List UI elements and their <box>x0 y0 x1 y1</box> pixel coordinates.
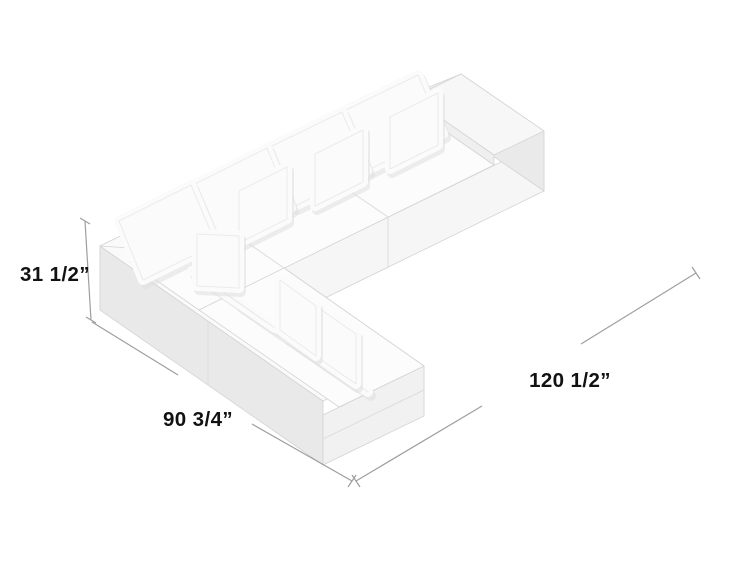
throw-pillow <box>197 234 241 292</box>
dimension-tick <box>692 267 700 279</box>
sofa-illustration <box>100 74 544 465</box>
dimension-diagram: 31 1/2” 90 3/4” 120 1/2” <box>0 0 739 570</box>
dimension-line <box>581 273 696 344</box>
dimension-tick <box>352 475 360 487</box>
width-dimension-label: 120 1/2” <box>529 369 611 392</box>
diagram-canvas: 31 1/2” 90 3/4” 120 1/2” <box>0 0 739 570</box>
height-dimension-label: 31 1/2” <box>20 263 90 286</box>
depth-dimension-label: 90 3/4” <box>163 408 233 431</box>
dimension-tick <box>348 475 356 487</box>
dimension-height: 31 1/2” <box>20 218 96 323</box>
